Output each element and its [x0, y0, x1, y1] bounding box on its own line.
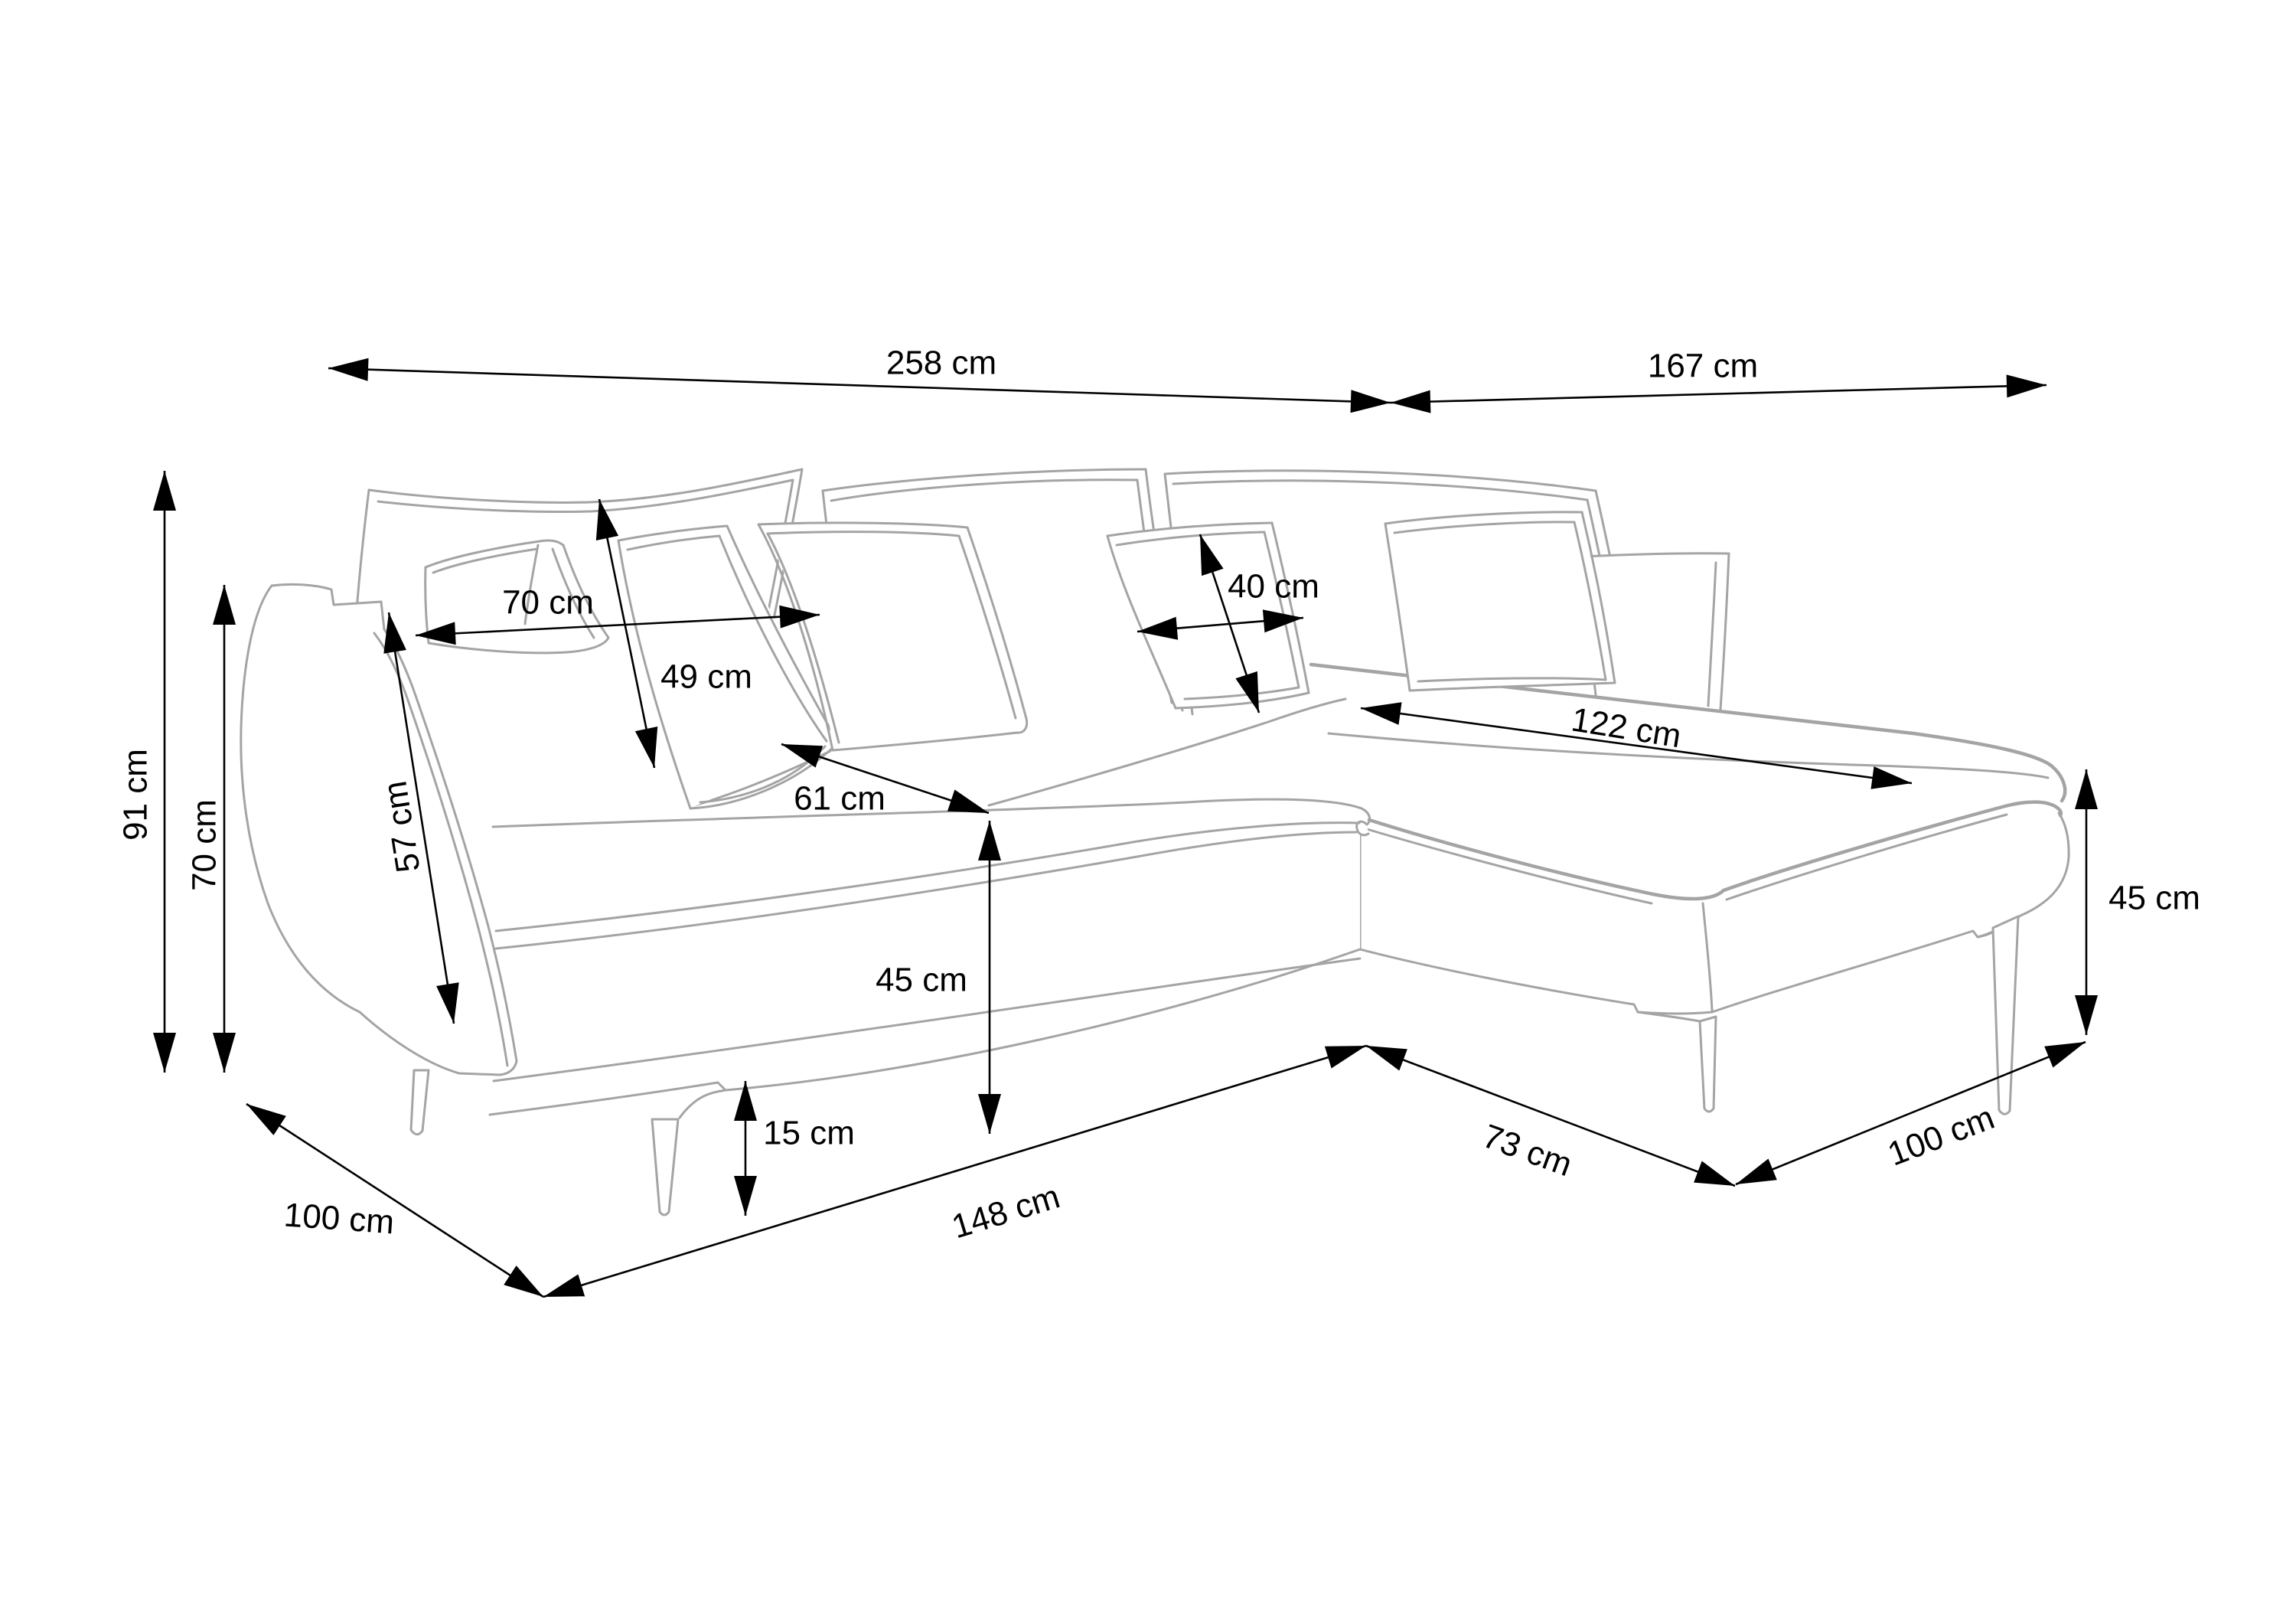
svg-text:49 cm: 49 cm	[660, 658, 752, 695]
svg-text:100 cm: 100 cm	[282, 1196, 395, 1241]
svg-text:45 cm: 45 cm	[876, 961, 967, 998]
svg-text:45 cm: 45 cm	[2108, 879, 2200, 916]
svg-text:70 cm: 70 cm	[502, 583, 594, 621]
svg-text:91 cm: 91 cm	[116, 749, 154, 841]
svg-text:258 cm: 258 cm	[886, 344, 996, 381]
svg-text:167 cm: 167 cm	[1648, 347, 1758, 384]
svg-text:40 cm: 40 cm	[1228, 567, 1319, 605]
svg-text:15 cm: 15 cm	[763, 1114, 855, 1151]
svg-text:70 cm: 70 cm	[185, 799, 223, 891]
svg-text:61 cm: 61 cm	[794, 779, 885, 817]
